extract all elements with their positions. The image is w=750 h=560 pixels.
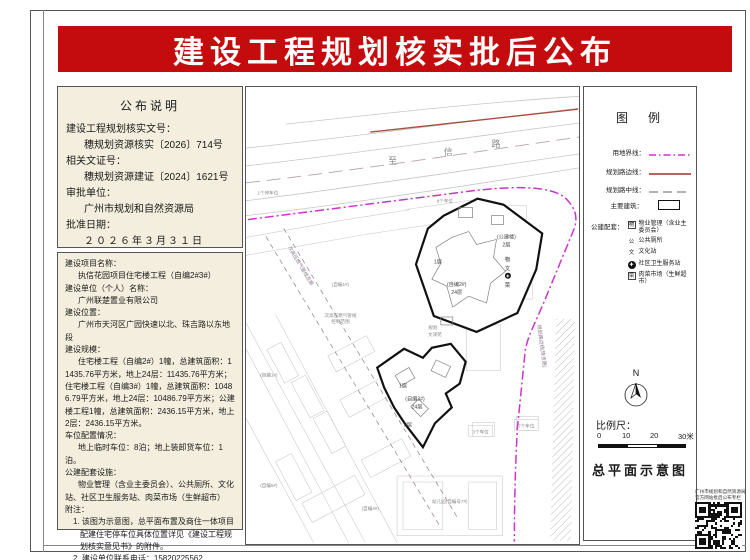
market-icon: 菜: [628, 272, 636, 280]
parking-label: 1个停车位: [257, 190, 278, 197]
road-name-char: 路: [492, 138, 501, 149]
legend-facilities: 公建配套： 物 物业管理（含业主委员会） 公 公共厕所 文 文化站 ✚ 社区卫生…: [591, 221, 688, 286]
approval-date: ２０２６年３月３１日: [66, 234, 234, 250]
parking-config: 地上临时车位：8泊；地上装卸货车位：1泊。: [65, 442, 235, 467]
road-name-char: 信: [444, 146, 453, 157]
project-name: 执信花园项目住宅楼工程（自编2#3#）: [65, 270, 235, 282]
parking-label: 7个车位: [518, 422, 535, 429]
gas-note-label: 控制范围: [331, 318, 350, 325]
svg-text:N: N: [633, 368, 640, 378]
gas-corridor-label: 次高压燃气管线走廊: [286, 245, 315, 287]
existing-building-label: (自编5#): [260, 482, 278, 489]
field-value: 穗规划资源建证〔2024〕1621号: [66, 170, 234, 186]
existing-building-label: (自编4#): [362, 505, 380, 512]
parking-label: 8个车位: [437, 198, 454, 205]
road-edge-note-label: 规划路边线(珠吉路): [535, 324, 548, 368]
notes-label: 附注：: [65, 504, 235, 516]
notice-title: 公布说明: [66, 97, 234, 114]
field-label: 车位配置情况：: [65, 430, 235, 442]
kindergarten-label: 幼儿园(自编号7#): [432, 498, 468, 505]
facility-item: 公 公共厕所: [628, 238, 688, 246]
building-label: (自编3#): [405, 394, 425, 402]
facility-item: 菜 肉菜市场（生鲜超市）: [628, 272, 688, 286]
note-item: 1. 该图为示意图，总平面布置及商住一体项目配建住宅停车位具体位置详见《建设工程…: [65, 516, 235, 553]
existing-building-label: (自编1#): [260, 372, 278, 379]
planned-road-edge-line: [370, 109, 578, 132]
field-value: 广州市规划和自然资源局: [66, 202, 234, 218]
building-label: 24层: [451, 289, 462, 296]
details-panel: 建设项目名称： 执信花园项目住宅楼工程（自编2#3#） 建设单位（个人）名称： …: [57, 252, 243, 530]
scale-bar: [598, 444, 686, 448]
site-plan-map: 至 信 路: [245, 86, 580, 545]
facility-item: ✚ 社区卫生服务站: [628, 261, 688, 269]
facility-item: 文 文化站: [628, 249, 688, 257]
field-label: 相关文证号：: [66, 154, 234, 170]
field-value: 穗规划资源核实〔2026〕714号: [66, 138, 234, 154]
road-center-line-sample: [649, 184, 691, 194]
project-location: 广州市天河区广园快速以北、珠吉路以东地段: [65, 319, 235, 344]
developer-name: 广州联楚置业有限公司: [65, 295, 235, 307]
building-sample: [658, 200, 680, 210]
plan-title: 总平面示意图: [584, 460, 696, 479]
building-label: (自编2#): [447, 280, 467, 288]
qr-caption: 官方网站批后公布专栏: [695, 495, 747, 501]
building-label: (公建楼): [497, 232, 516, 240]
building-label: 2层: [502, 241, 510, 248]
page-title: 建设工程规划核实批后公布: [173, 27, 617, 72]
project-scale: 住宅楼工程（自编2#）1幢，总建筑面积：11435.76平方米，地上24层：11…: [65, 356, 235, 430]
road-name-char: 至: [388, 156, 397, 166]
existing-building-label: (自编1#): [332, 281, 350, 288]
planned-site-label: 规划: [428, 324, 438, 331]
note-item: 2. 建设单位联系电话：15820225562: [65, 553, 235, 560]
field-label: 建设单位（个人）名称：: [65, 283, 235, 295]
road-edge-line-sample: [649, 166, 691, 176]
field-label: 审批单位：: [66, 186, 234, 202]
field-label: 建设工程规划核实文号：: [66, 122, 234, 138]
market-icon: 菜: [505, 281, 511, 289]
public-facilities: 物业管理（含业主委员会）、公共厕所、文化站、社区卫生服务站、肉菜市场（生鲜超市）: [65, 479, 235, 504]
legend-row-road-edge: 规划路边线：: [597, 166, 691, 176]
boundary-line-sample: [649, 147, 691, 157]
public-toilet-icon: 公: [628, 238, 636, 246]
field-label: 批准日期：: [66, 218, 234, 234]
field-label: 建设项目名称：: [65, 258, 235, 270]
building-label: 24层: [412, 403, 423, 410]
notice-panel: 公布说明 建设工程规划核实文号： 穗规划资源核实〔2026〕714号 相关文证号…: [57, 86, 243, 248]
legend-row-road-center: 规划路中线：: [597, 184, 691, 194]
legend-row-building: 主要建筑：: [595, 200, 691, 210]
site-plan-drawing: 至 信 路: [246, 87, 579, 544]
planned-site-label: 文津苑: [428, 331, 442, 338]
gas-note-label: 次高压燃气管线: [324, 312, 356, 319]
parking-label: 3个车位: [472, 428, 489, 435]
announcement-page: 建设工程规划核实批后公布 公布说明 建设工程规划核实文号： 穗规划资源核实〔20…: [0, 0, 750, 560]
building-label: 2层: [404, 421, 412, 428]
field-label: 建设规模：: [65, 344, 235, 356]
property-mgmt-icon: 物: [505, 255, 511, 263]
legend-panel: 图 例 用地界线： 规划路边线： 规划路中线： 主要建筑： 公建配套：: [583, 86, 697, 541]
building-label: 1层: [434, 258, 442, 265]
qr-block: 广州市规划和自然资源局 官方网站批后公布专栏: [695, 489, 747, 549]
scale-label: 比例尺：: [596, 417, 636, 432]
building-label: 1层: [399, 383, 407, 390]
svg-text:✚: ✚: [506, 273, 510, 278]
legend-title: 图 例: [584, 109, 696, 126]
qr-code: [695, 502, 742, 549]
scale-ticks: 0 10 20 30米: [597, 431, 697, 440]
legend-row-boundary: 用地界线：: [597, 147, 691, 157]
field-label: 公建配套设施：: [65, 467, 235, 479]
slope-hatch-area: [550, 319, 575, 541]
field-label: 建设位置：: [65, 307, 235, 319]
north-arrow: N: [614, 367, 658, 420]
property-mgmt-icon: 物: [628, 221, 636, 229]
qr-caption: 广州市规划和自然资源局: [695, 489, 747, 495]
health-station-icon: ✚: [628, 261, 636, 269]
culture-station-icon: 文: [628, 249, 636, 257]
title-banner: 建设工程规划核实批后公布: [58, 26, 732, 72]
culture-station-icon: 文: [505, 264, 511, 272]
page-border-inner-left: [43, 10, 44, 552]
facility-item: 物 物业管理（含业主委员会）: [628, 221, 688, 235]
